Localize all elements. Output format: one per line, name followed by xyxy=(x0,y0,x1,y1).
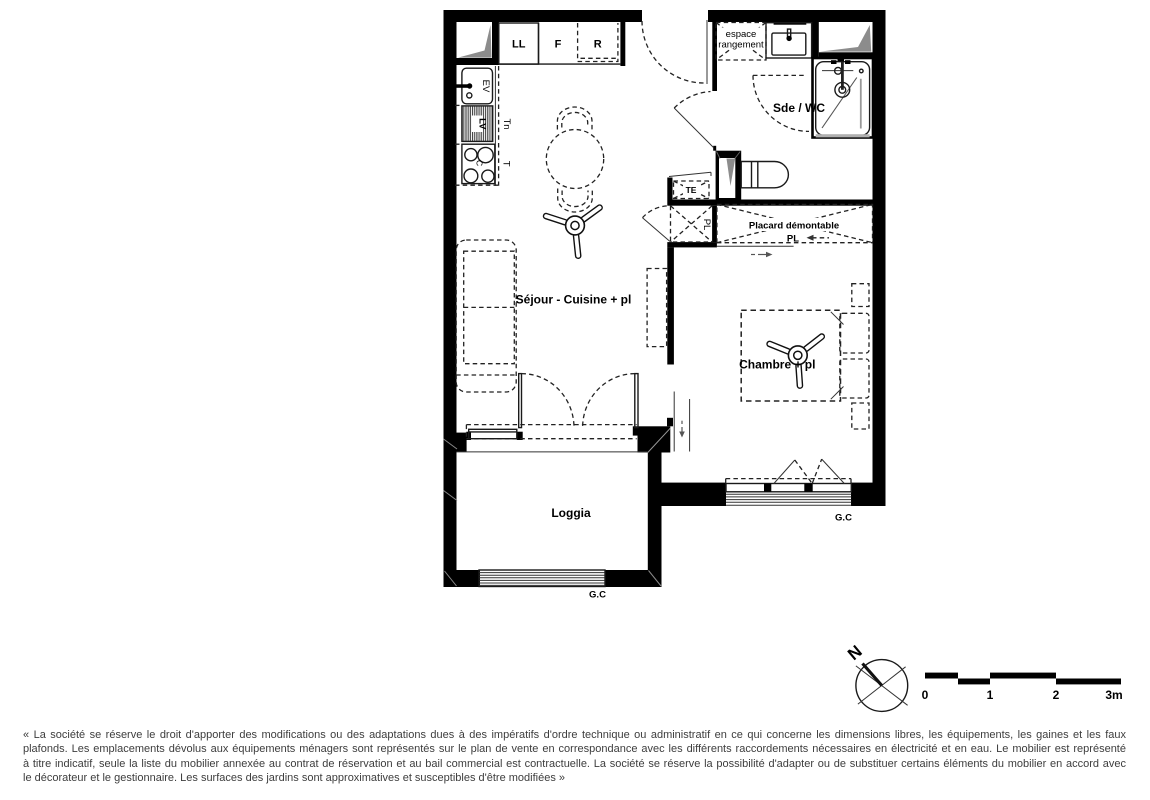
svg-text:Loggia: Loggia xyxy=(551,506,591,520)
svg-text:LV: LV xyxy=(477,118,488,130)
svg-text:EV: EV xyxy=(480,80,491,93)
svg-text:1: 1 xyxy=(987,688,994,702)
svg-text:2: 2 xyxy=(1053,688,1060,702)
svg-text:Placard démontable: Placard démontable xyxy=(749,221,839,232)
svg-text:R: R xyxy=(594,39,602,51)
svg-text:T: T xyxy=(501,161,512,167)
svg-text:G.C: G.C xyxy=(835,512,852,523)
svg-text:F: F xyxy=(555,39,562,51)
svg-text:G.C: G.C xyxy=(589,589,606,600)
svg-text:rangement: rangement xyxy=(718,40,764,51)
svg-text:Séjour - Cuisine + pl: Séjour - Cuisine + pl xyxy=(516,293,632,307)
svg-text:Chambre + pl: Chambre + pl xyxy=(739,358,815,372)
svg-text:LL: LL xyxy=(512,39,526,51)
svg-text:PL: PL xyxy=(701,219,712,231)
svg-text:PL: PL xyxy=(787,233,799,244)
svg-text:Sde / WC: Sde / WC xyxy=(773,101,825,115)
svg-text:Tn: Tn xyxy=(501,118,512,129)
svg-text:3m: 3m xyxy=(1105,688,1122,702)
svg-text:espace: espace xyxy=(726,29,757,40)
svg-text:C: C xyxy=(475,160,485,166)
svg-text:TE: TE xyxy=(686,185,697,195)
svg-text:0: 0 xyxy=(922,688,929,702)
